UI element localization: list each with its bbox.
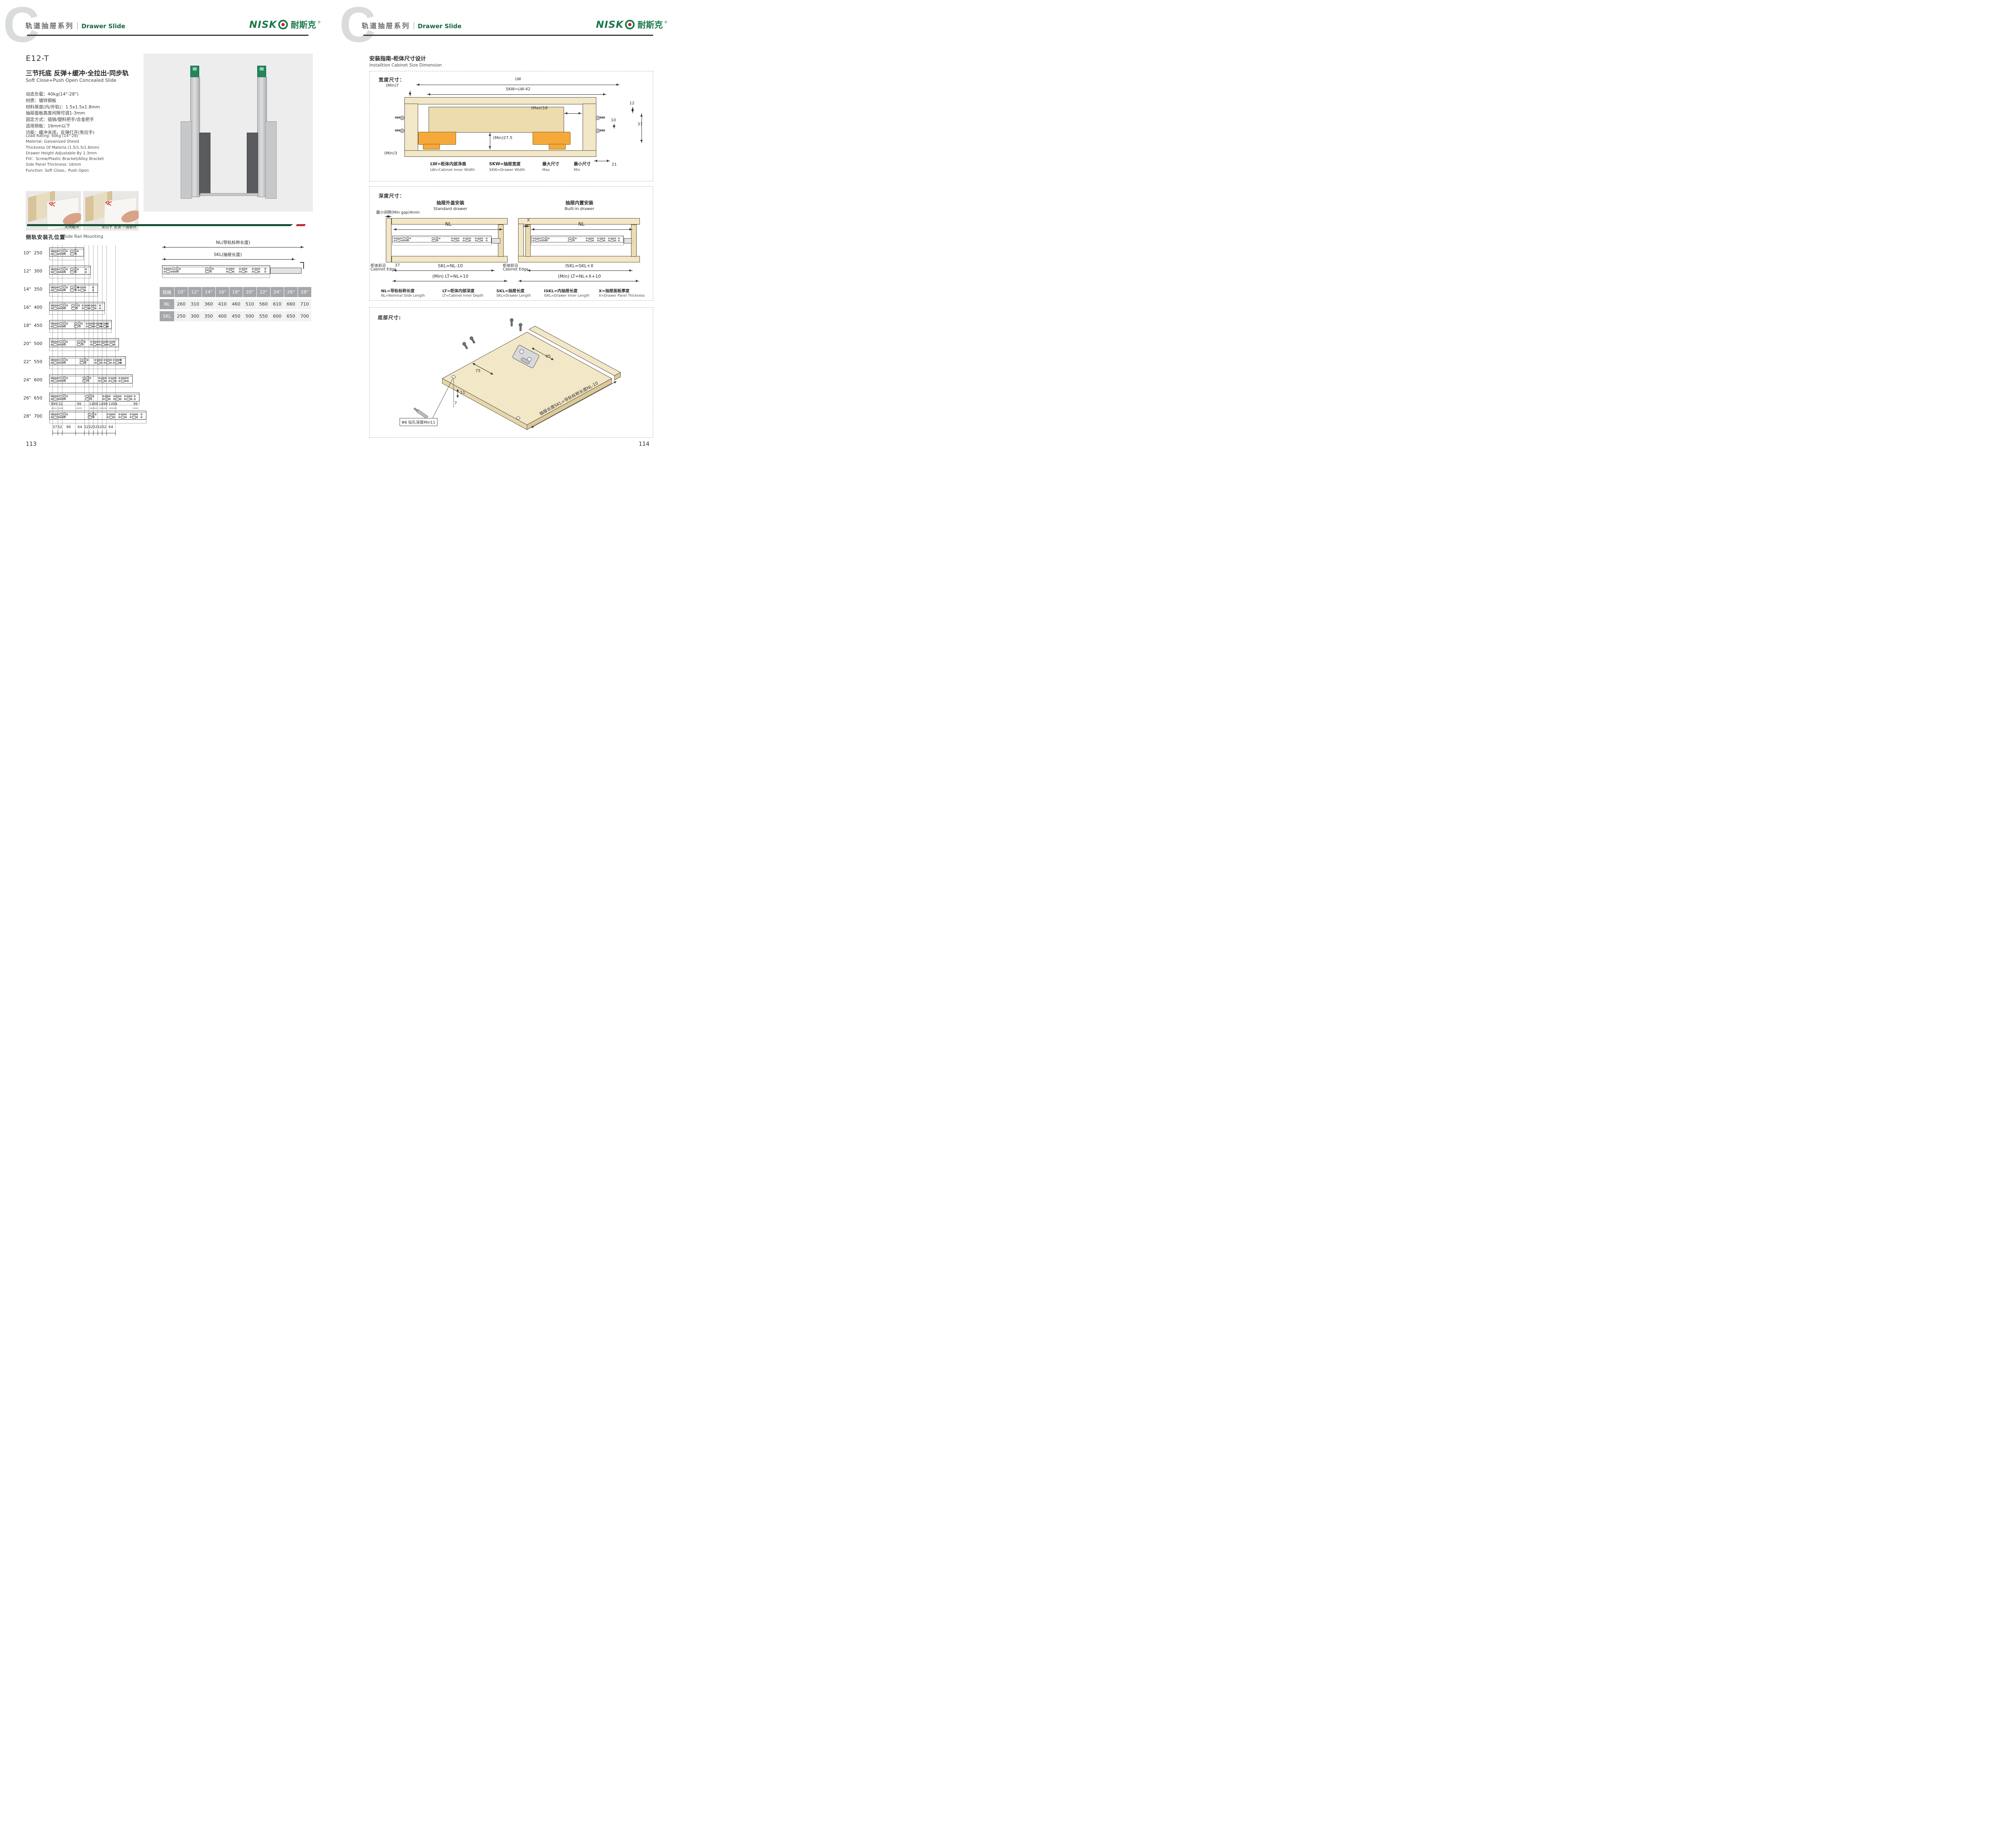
rail-top-dim-line xyxy=(76,408,82,408)
bi-iskl-arrow xyxy=(527,270,633,271)
rail-bottom-dim-tick xyxy=(52,431,53,435)
rail-bottom-dim: 32 xyxy=(93,425,97,429)
rail-bottom-dim-tick xyxy=(98,431,98,435)
depth-legend-en: SKL=Drawer Length xyxy=(496,294,531,298)
rail-inch: 22" xyxy=(23,359,31,364)
d10-label: 10 xyxy=(611,118,616,123)
page-number-left: 113 xyxy=(26,441,37,447)
table-skl-label: SKL xyxy=(160,311,174,321)
table-header-size: 26" xyxy=(284,287,298,297)
depth-dimension-box: 深度尺寸： 抽屉外盖安装 Standard drawer 抽屉内置安装 Buil… xyxy=(369,186,653,301)
drawer-panel xyxy=(429,107,564,133)
rail-row-label: 24"600 xyxy=(23,377,47,383)
header-rule-right xyxy=(363,35,653,36)
rail-mm: 250 xyxy=(34,250,42,256)
rail-bottom-dim: 32 xyxy=(88,425,93,429)
rail-top-dim: 1499 xyxy=(89,402,98,406)
d12-arrow xyxy=(633,107,633,113)
table-skl-value: 450 xyxy=(229,311,243,321)
depth-legend-en: LT=Cabinet Inner Depth xyxy=(442,294,483,298)
depth-legend-en: NL=Nominal Slide Length xyxy=(381,294,425,298)
bi-lt-label: (Min) LT=NL+X+10 xyxy=(558,274,601,279)
table-nl-value: 460 xyxy=(229,299,243,309)
rail-top-dim-line xyxy=(58,408,63,408)
rail-row-label: 20"500 xyxy=(23,341,47,346)
rail-bottom-dim: 37 xyxy=(52,425,57,429)
d37-arrow xyxy=(641,113,642,143)
std-cabinet-bottom xyxy=(392,256,508,262)
logo-o-icon-2 xyxy=(625,20,635,29)
table-skl-value: 700 xyxy=(298,311,311,321)
bi-edge-en: Cabinet Edge xyxy=(503,267,529,272)
table-row: SKL250300350400450500550600650700 xyxy=(160,311,311,321)
page-header-right: 轨道抽屉系列Drawer Slide xyxy=(362,20,462,30)
iso-85-label: 85 xyxy=(546,354,551,359)
rail-top-dim: 999 xyxy=(51,402,57,406)
std-nl-label: NL xyxy=(445,221,452,227)
screw-icon-2 xyxy=(395,129,402,131)
rail-row-label: 18"450 xyxy=(23,323,47,328)
rail-inch: 16" xyxy=(23,305,31,310)
slide-hardware-right xyxy=(533,132,571,145)
table-nl-value: 260 xyxy=(175,299,188,309)
iso-11-label: 11 xyxy=(460,391,465,395)
rail-graphic xyxy=(49,283,98,298)
rail-top-dim: 1499 xyxy=(99,402,108,406)
table-nl-value: 560 xyxy=(257,299,270,309)
d12-label: 12 xyxy=(629,101,635,106)
builtin-drawer-en: Built-in drawer xyxy=(564,207,594,211)
width-legend-cn: 最小尺寸 xyxy=(574,161,591,167)
rail-bottom-dim: 96 xyxy=(66,425,71,429)
width-dimension-box: 宽度尺寸： LW SKW=LW-42 (Min)7 (Max)16 (Min)2… xyxy=(369,71,653,181)
screw-icon xyxy=(395,116,402,119)
table-skl-value: 500 xyxy=(243,311,256,321)
skl-dim-label: SKL(抽屉长度) xyxy=(214,252,242,258)
min7-label: (Min)7 xyxy=(386,83,399,88)
logo-latin-2: NISK xyxy=(596,19,624,30)
screw-icon-3 xyxy=(598,116,605,119)
bottom-dimension-box: 底部尺寸: xyxy=(369,307,653,438)
rail-inch: 10" xyxy=(23,250,31,256)
install-guide-title-en: Installtion Cabinet Size Dimension xyxy=(369,63,442,68)
logo-registered-mark-2: ® xyxy=(664,21,668,25)
depth-legend-cn: ISKL=内抽屉长度 xyxy=(544,287,577,293)
slide-inner-rail xyxy=(270,268,302,274)
cabinet-left-board xyxy=(404,104,418,151)
depth-legend-cn: X=抽屉面板厚度 xyxy=(599,287,629,293)
width-box-label: 宽度尺寸： xyxy=(379,76,405,83)
std-37-label: 37 xyxy=(395,263,400,268)
series-title-en-2: Drawer Slide xyxy=(418,23,462,30)
min275-arrow xyxy=(490,133,490,150)
table-nl-value: 610 xyxy=(271,299,284,309)
depth-legend-en: ISKL=Drawer Inner Length xyxy=(544,294,589,298)
rail-mm: 650 xyxy=(34,395,42,401)
bi-x-arrow xyxy=(523,226,530,227)
rail-guide-line xyxy=(75,245,76,433)
slide-hardware-left-foot xyxy=(423,144,440,150)
min7-arrow xyxy=(410,91,410,96)
min-gap-label: 最小间隙(Min gap)4mm xyxy=(376,209,420,215)
width-legend-cn: LW=柜体内部净高 xyxy=(430,161,466,167)
rail-bottom-dim-tick xyxy=(106,431,107,435)
rail-inch: 20" xyxy=(23,341,31,346)
table-nl-value: 710 xyxy=(298,299,311,309)
rail-row-label: 10"250 xyxy=(23,250,47,256)
rail-bottom-dim-tick xyxy=(62,431,62,435)
table-header-size: 24" xyxy=(271,287,284,297)
depth-legend-cn: SKL=抽屉长度 xyxy=(496,287,525,293)
rail-guide-line xyxy=(84,245,85,433)
table-row: 规格10"12"14"16"18"20"22"24"26"28" xyxy=(160,287,311,297)
rail-bottom-dim-tick xyxy=(89,431,89,435)
rail-bottom-dim-tick xyxy=(93,431,94,435)
table-skl-value: 250 xyxy=(175,311,188,321)
table-header-size: 20" xyxy=(243,287,256,297)
rail-top-dim: 99 xyxy=(77,402,81,406)
rail-inch: 12" xyxy=(23,268,31,274)
page-number-right: 114 xyxy=(639,441,650,447)
table-skl-value: 650 xyxy=(284,311,298,321)
catalog-spread: C 轨道抽屉系列Drawer Slide NISK 耐斯克 ® C 轨道抽屉系列… xyxy=(0,0,676,462)
rail-mm: 700 xyxy=(34,414,42,419)
table-skl-value: 350 xyxy=(202,311,215,321)
rail-mm: 600 xyxy=(34,377,42,383)
rail-row-label: 28"700 xyxy=(23,414,47,419)
table-nl-label: NL xyxy=(160,299,174,309)
depth-legend-cn: LT=柜体内部深度 xyxy=(442,287,475,293)
rail-top-dim-line xyxy=(51,408,57,408)
rail-row-label: 22"550 xyxy=(23,359,47,364)
depth-box-label: 深度尺寸： xyxy=(379,192,405,199)
cabinet-right-board xyxy=(583,104,596,151)
rail-bottom-dim: 64 xyxy=(77,425,82,429)
max16-arrow xyxy=(564,113,582,114)
standard-drawer-cn: 抽屉外盖安装 xyxy=(437,200,464,206)
std-lt-label: (Min) LT=NL+10 xyxy=(432,274,469,279)
width-legend-en: LW=Cabinet Inner Width xyxy=(430,168,475,172)
builtin-drawer-cn: 抽屉内置安装 xyxy=(566,200,594,206)
skw-label: SKW=LW-42 xyxy=(506,87,530,92)
rail-mm: 350 xyxy=(34,287,42,292)
screw-icon-4 xyxy=(598,129,605,131)
rail-bottom-dim-tick xyxy=(84,431,85,435)
nl-dim-label: NL(导轨标称长度) xyxy=(216,239,250,245)
min275-label: (Min)27.5 xyxy=(493,136,512,140)
table-skl-value: 600 xyxy=(271,311,284,321)
rail-mm: 550 xyxy=(34,359,42,364)
rail-row-label: 14"350 xyxy=(23,287,47,292)
depth-legend-cn: NL=导轨标称长度 xyxy=(381,287,414,293)
rail-graphic xyxy=(49,247,84,262)
standard-drawer-en: Standard drawer xyxy=(433,207,467,211)
isometric-drawer-diagram: 75 85 11 7 Φ6 钻孔深度Min11 抽屉长度SKL=导轨标称长度NL… xyxy=(390,318,640,435)
d21-arrow xyxy=(594,161,610,161)
table-nl-value: 410 xyxy=(216,299,229,309)
table-header-size: 12" xyxy=(188,287,202,297)
iso-75-label: 75 xyxy=(475,369,481,373)
rail-bottom-dim-tick xyxy=(75,431,76,435)
table-header-size: 28" xyxy=(298,287,311,297)
bi-iskl-label: ISKL=SKL+X xyxy=(565,263,594,268)
rail-top-dim: 1499 xyxy=(108,402,117,406)
brand-logo-right: NISK 耐斯克 ® xyxy=(596,19,668,31)
width-legend-cn: 最大尺寸 xyxy=(542,161,559,167)
table-skl-value: 300 xyxy=(188,311,202,321)
logo-cn-2: 耐斯克 xyxy=(637,19,663,31)
rail-bottom-dim-tick xyxy=(58,431,58,435)
table-header-size: 10" xyxy=(175,287,188,297)
std-lt-arrow xyxy=(392,281,508,281)
rail-mm: 450 xyxy=(34,323,42,328)
iso-7-label: 7 xyxy=(454,401,457,406)
std-skl-label: SKL=NL-10 xyxy=(438,263,463,268)
rail-top-dim: 32 xyxy=(58,402,63,406)
rail-top-dim-line xyxy=(109,408,117,408)
cabinet-top-board xyxy=(404,97,596,104)
rail-bottom-dim-tick xyxy=(102,431,102,435)
depth-legend-en: X=Drawer Panel Thickness xyxy=(599,294,645,298)
slide-hardware-right-foot xyxy=(549,144,566,150)
rail-bottom-dim: 32 xyxy=(102,425,106,429)
table-nl-value: 660 xyxy=(284,299,298,309)
rail-inch: 24" xyxy=(23,377,31,383)
nl-dim-arrow xyxy=(162,247,304,248)
iso-linework xyxy=(390,318,640,435)
rail-top-dim-line xyxy=(99,408,107,408)
rail-bottom-dim: 32 xyxy=(84,425,88,429)
table-header-size: 22" xyxy=(257,287,270,297)
width-legend-en: SKW=Drawer Width xyxy=(489,168,525,172)
series-title-cn-2: 轨道抽屉系列 xyxy=(362,22,410,30)
rail-inch: 14" xyxy=(23,287,31,292)
max16-label: (Max)16 xyxy=(531,106,548,110)
slide-hook xyxy=(300,262,304,269)
table-row: NL260310360410460510560610660710 xyxy=(160,299,311,309)
bi-slide-rail xyxy=(531,235,624,247)
rail-inch: 28" xyxy=(23,414,31,419)
skl-dim-arrow xyxy=(162,259,295,260)
width-legend-en: Max xyxy=(542,168,550,172)
table-header-size: 18" xyxy=(229,287,243,297)
rail-row-label: 16"400 xyxy=(23,305,47,310)
d10-arrow xyxy=(614,124,614,129)
std-nl-arrow xyxy=(393,229,503,230)
cabinet-bottom-board xyxy=(404,150,596,157)
bi-lt-arrow xyxy=(518,281,639,281)
rail-mm: 400 xyxy=(34,305,42,310)
size-table: 规格10"12"14"16"18"20"22"24"26"28"NL260310… xyxy=(160,287,311,321)
lw-arrow xyxy=(416,85,620,85)
std-skl-arrow xyxy=(393,270,495,271)
rail-top-dim: 99 xyxy=(133,402,138,406)
min3-label: (Min)3 xyxy=(384,151,397,156)
lw-label: LW xyxy=(515,77,521,81)
install-guide-title-cn: 安装指南-柜体尺寸设计 xyxy=(369,54,426,62)
width-legend-cn: SKW=抽屉宽度 xyxy=(489,161,521,167)
table-header-size: 16" xyxy=(216,287,229,297)
table-header-spec: 规格 xyxy=(160,287,174,297)
std-slide-inner xyxy=(492,238,500,243)
bi-cabinet-bottom xyxy=(518,256,640,262)
rail-top-dim-line xyxy=(133,408,138,408)
table-nl-value: 510 xyxy=(243,299,256,309)
skw-arrow xyxy=(427,94,606,95)
slide-graphic xyxy=(162,264,270,280)
bi-nl-label: NL xyxy=(578,221,585,227)
bi-slide-inner xyxy=(624,238,632,243)
rail-top-dim-line xyxy=(90,408,98,408)
rail-bottom-dim: 64 xyxy=(108,425,113,429)
min-gap-arrow xyxy=(385,216,392,217)
width-legend-en: Min xyxy=(574,168,580,172)
rail-graphic xyxy=(49,356,126,371)
std-cabinet-front-wall xyxy=(386,218,392,262)
table-nl-value: 360 xyxy=(202,299,215,309)
table-skl-value: 400 xyxy=(216,311,229,321)
table-nl-value: 310 xyxy=(188,299,202,309)
rail-inch: 18" xyxy=(23,323,31,328)
rail-mm: 500 xyxy=(34,341,42,346)
rail-row-label: 12"300 xyxy=(23,268,47,274)
bi-x-label: X xyxy=(527,218,530,223)
std-slide-rail xyxy=(392,235,492,247)
rail-inch: 26" xyxy=(23,395,31,401)
rail-bottom-dim-tick xyxy=(115,431,116,435)
side-rail-mounting-diagram: 10"250 12"300 14"350 16"400 18"450 20"50… xyxy=(0,0,338,462)
table-skl-value: 550 xyxy=(257,311,270,321)
rail-bottom-dim: 32 xyxy=(97,425,102,429)
rail-bottom-dim: 32 xyxy=(57,425,62,429)
table-header-size: 14" xyxy=(202,287,215,297)
rail-row-label: 26"650 xyxy=(23,395,47,401)
bi-nl-arrow xyxy=(531,229,633,230)
header-divider-2 xyxy=(414,22,414,29)
bi-drawer-front-panel xyxy=(525,225,531,257)
d21-label: 21 xyxy=(612,162,617,167)
slide-hardware-left xyxy=(418,132,456,145)
rail-mm: 300 xyxy=(34,268,42,274)
drill-note: Φ6 钻孔深度Min11 xyxy=(400,418,437,426)
